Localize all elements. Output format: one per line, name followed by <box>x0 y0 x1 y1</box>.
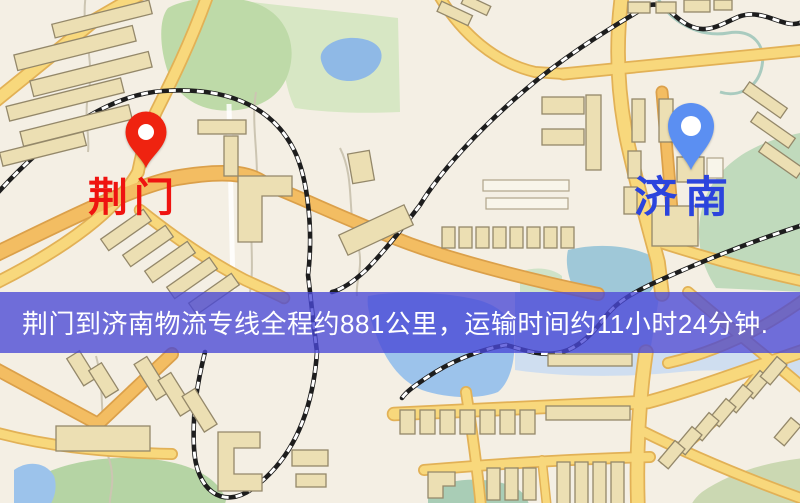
map-view: 荆门 济南 荆门到济南物流专线全程约881公里，运输时间约11小时24分钟. <box>0 0 800 503</box>
destination-pin-icon[interactable] <box>667 102 715 172</box>
map-canvas[interactable] <box>0 0 800 503</box>
origin-pin-icon[interactable] <box>125 111 167 170</box>
route-info-banner: 荆门到济南物流专线全程约881公里，运输时间约11小时24分钟. <box>0 292 800 353</box>
origin-city-label: 荆门 <box>88 178 180 218</box>
destination-city-label: 济南 <box>634 177 736 220</box>
route-info-text: 荆门到济南物流专线全程约881公里，运输时间约11小时24分钟. <box>22 304 769 341</box>
